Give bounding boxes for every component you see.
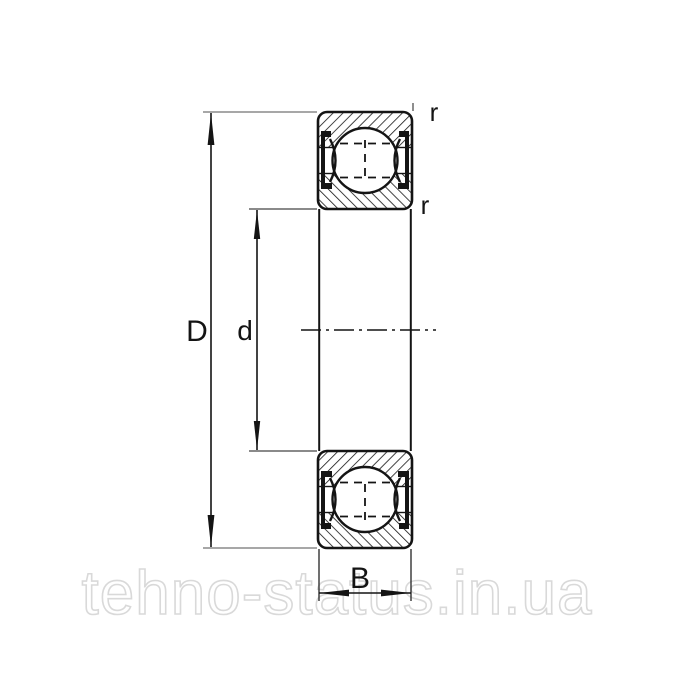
arrowhead-D-top xyxy=(208,113,215,145)
fillet-radius-annotations: r r xyxy=(413,97,439,220)
dimension-outer-diameter: D xyxy=(186,113,214,547)
label-corner-radius-top: r xyxy=(430,97,439,127)
label-width: B xyxy=(350,562,370,595)
dimension-bore-diameter: d xyxy=(237,210,260,450)
label-corner-radius-bore: r xyxy=(421,190,430,220)
bearing-drawing-page: tehno-status.in.ua D d B xyxy=(0,0,675,675)
arrowhead-D-bottom xyxy=(208,515,215,547)
arrowhead-d-bottom xyxy=(254,421,260,450)
bearing-section-bottom xyxy=(318,451,412,548)
bearing-cross-section-diagram: tehno-status.in.ua D d B xyxy=(0,0,675,675)
bearing-section-top xyxy=(318,112,412,209)
bore-edge-lines xyxy=(319,209,411,451)
label-bore-diameter: d xyxy=(237,315,253,346)
label-outer-diameter: D xyxy=(186,315,208,348)
arrowhead-d-top xyxy=(254,210,260,239)
